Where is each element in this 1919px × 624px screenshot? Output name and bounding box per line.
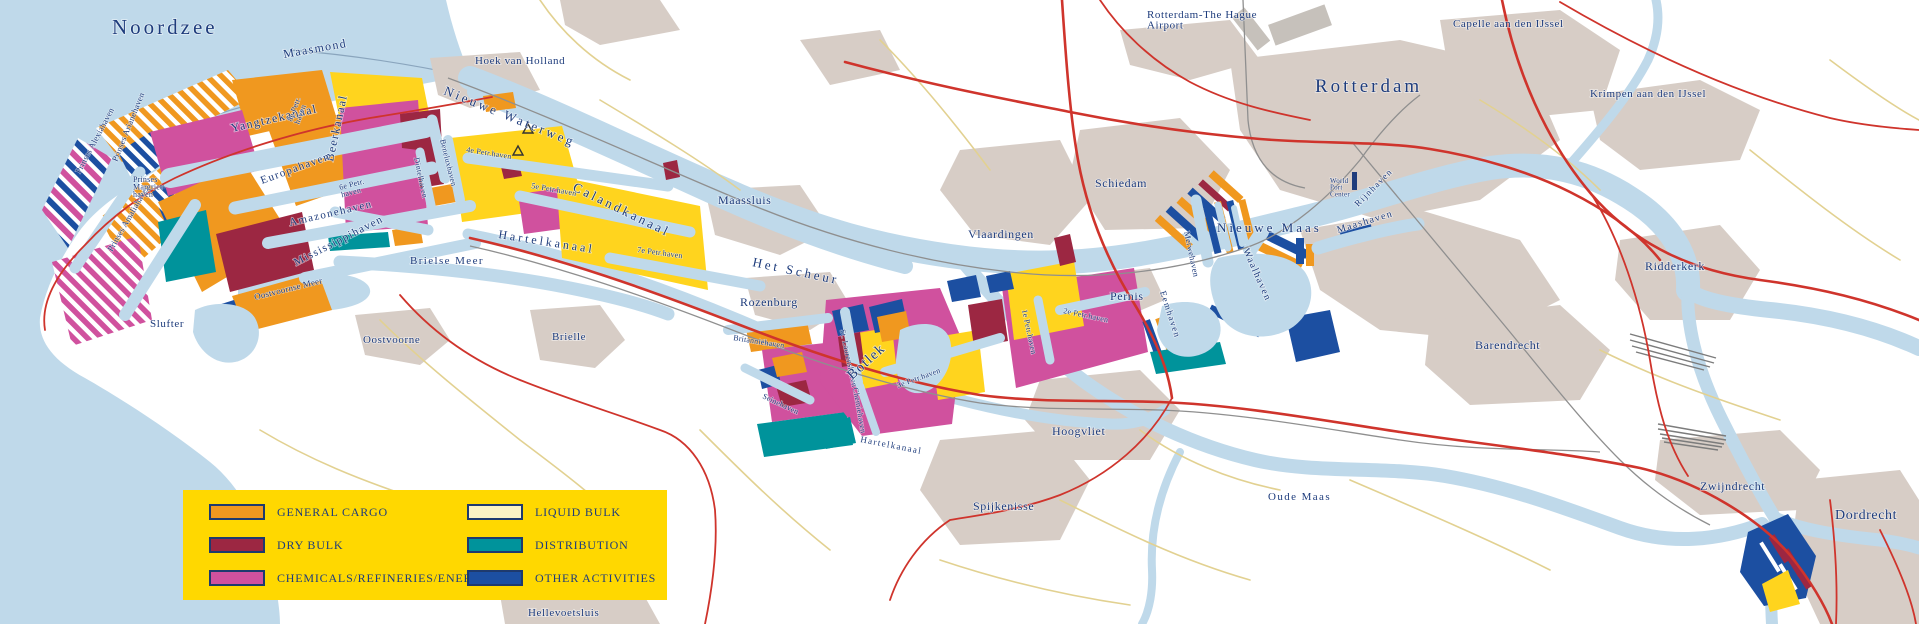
zone-oa-scheur [947,275,981,302]
legend-item-chemicals: CHEMICALS/REFINERIES/ENERGY [209,570,467,586]
label-barendrecht: Barendrecht [1475,338,1540,352]
label-noordzee: Noordzee [112,15,218,39]
label-maassluis: Maassluis [718,193,771,207]
label-hoogvliet: Hoogvliet [1052,424,1105,438]
legend-column-1: GENERAL CARGO DRY BULK CHEMICALS/REFINER… [209,504,467,586]
airport-apron [1268,4,1332,45]
label-nieuwe-maas: Nieuwe Maas [1217,220,1322,235]
urban-delft-edge [800,30,900,85]
label-dordrecht: Dordrecht [1835,508,1897,523]
label-spijkenisse: Spijkenisse [973,499,1034,513]
legend-item-distribution: DISTRIBUTION [467,537,693,553]
legend-item-general-cargo: GENERAL CARGO [209,504,467,520]
legend-label-distribution: DISTRIBUTION [535,538,629,553]
legend-label-other-activities: OTHER ACTIVITIES [535,571,656,586]
world-port-center-icon [1352,172,1357,190]
label-ridderkerk: Ridderkerk [1645,259,1705,273]
legend-item-dry-bulk: DRY BULK [209,537,467,553]
label-rotterdam: Rotterdam [1315,76,1422,97]
port-of-rotterdam-map: NoordzeeMaasmondHoek van HollandYangtzek… [0,0,1919,624]
legend-column-2: LIQUID BULK DISTRIBUTION OTHER ACTIVITIE… [467,504,693,586]
label-brielse-meer: Brielse Meer [410,255,484,267]
label-krimpen-aan-den-ijssel: Krimpen aan den IJssel [1590,88,1706,100]
urban-barendrecht [1425,305,1610,405]
label-rozenburg: Rozenburg [740,295,798,309]
legend-label-dry-bulk: DRY BULK [277,538,343,553]
label-slufter: Slufter [150,318,184,330]
legend-swatch-distribution [467,537,523,553]
legend-label-chemicals: CHEMICALS/REFINERIES/ENERGY [277,571,491,586]
legend-swatch-general-cargo [209,504,265,520]
spui [1142,452,1180,624]
zone-db-europoort-2 [663,160,680,180]
label-oostvoorne: Oostvoorne [363,334,420,346]
legend-label-liquid-bulk: LIQUID BULK [535,505,621,520]
label-vlaardingen: Vlaardingen [968,227,1034,241]
legend-swatch-liquid-bulk [467,504,523,520]
label-hartelkanaal-east: Hartelkanaal [860,434,924,456]
label-pernis: Pernis [1110,289,1144,303]
label-capelle-aan-den-ijssel: Capelle aan den IJssel [1453,18,1564,30]
label-zwijndrecht: Zwijndrecht [1700,479,1765,493]
legend-swatch-dry-bulk [209,537,265,553]
legend: GENERAL CARGO DRY BULK CHEMICALS/REFINER… [183,490,667,600]
legend-swatch-chemicals [209,570,265,586]
zone-oa-katendrecht [1296,238,1304,264]
label-brielle: Brielle [552,331,586,343]
legend-label-general-cargo: GENERAL CARGO [277,505,388,520]
label-hoek-van-holland: Hoek van Holland [475,55,565,67]
legend-swatch-other-activities [467,570,523,586]
label-oude-maas: Oude Maas [1268,491,1331,503]
label-hellevoetsluis: Hellevoetsluis [528,607,599,619]
legend-item-liquid-bulk: LIQUID BULK [467,504,693,520]
legend-item-other-activities: OTHER ACTIVITIES [467,570,693,586]
slufter-lake [193,304,259,363]
label-schiedam: Schiedam [1095,176,1147,190]
rail-yard-ijsselmonde [1630,334,1716,370]
urban-westland [560,0,680,45]
